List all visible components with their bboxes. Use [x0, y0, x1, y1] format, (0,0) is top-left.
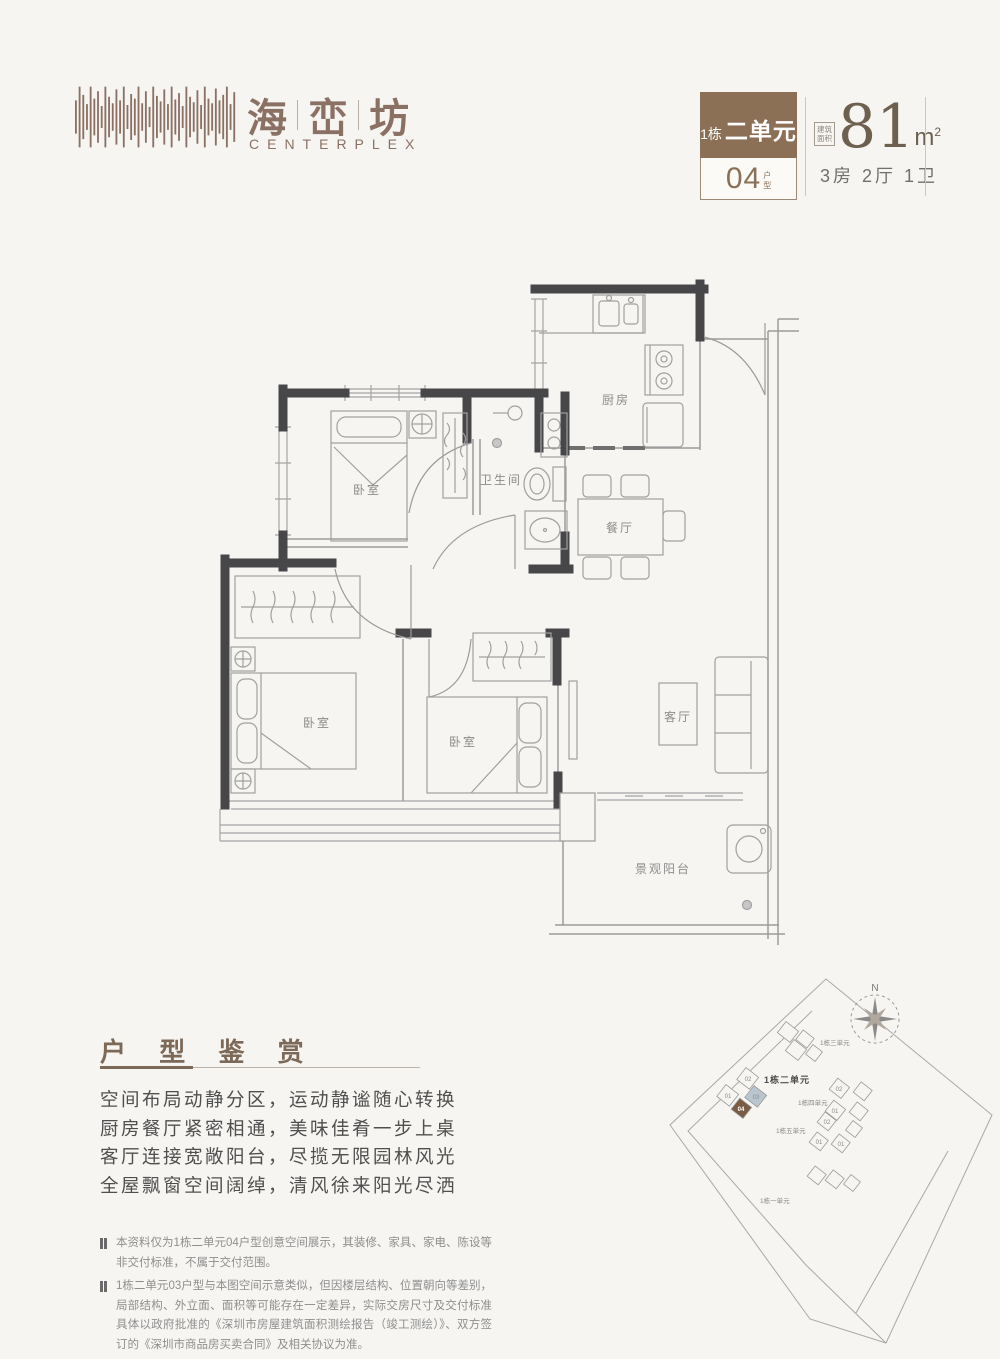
unit-box-number: 01: [832, 1109, 839, 1115]
spec-divider-left: [805, 97, 806, 196]
room-count: 3房 2厅 1卫: [820, 162, 941, 188]
area-unit: m2: [914, 124, 941, 152]
unit-box-number: 01: [816, 1140, 823, 1146]
unit-box-number: 02: [824, 1120, 831, 1126]
disclaimer-note: 1栋二单元03户型与本图空间示意类似，但因楼层结构、位置朝向等差别，局部结构、外…: [100, 1277, 492, 1355]
unit-badge-building: 1栋 二单元: [700, 92, 797, 158]
unit-badge-type: 04 户 型: [700, 158, 797, 200]
appreciation-line: 厨房餐厅紧密相通，美味佳肴一步上桌: [100, 1115, 457, 1144]
type-suffix: 户 型: [763, 171, 771, 189]
logo-barcode-icon: [75, 86, 237, 148]
unit-badge: 1栋 二单元 04 户 型: [700, 92, 797, 200]
brand-name-en: CENTERPLEX: [249, 136, 422, 152]
unit-box-number: 01: [838, 1142, 845, 1148]
balcony-fixtures: [727, 825, 771, 910]
unit-box-number-highlight: 04: [738, 1107, 745, 1113]
sitemap-label-unit1: 1栋一单元: [760, 1196, 790, 1205]
appreciation-line: 客厅连接宽敞阳台，尽揽无限园林风光: [100, 1143, 457, 1172]
room-label-bedroom: 卧室: [303, 715, 331, 730]
site-map: N 1栋三单元 1栋二单元 1栋四单元 1栋五单元 1栋一单元 02 01 03…: [660, 973, 1000, 1357]
appreciation-text: 空间布局动静分区，运动静谧随心转换 厨房餐厅紧密相通，美味佳肴一步上桌 客厅连接…: [100, 1086, 457, 1200]
bedroom3-furniture: [427, 633, 551, 793]
section-title: 户 型 鉴 赏: [100, 1032, 317, 1069]
pillar: [560, 793, 595, 841]
compass-icon: N: [851, 983, 899, 1043]
sitemap-label-unit4: 1栋四单元: [798, 1098, 828, 1107]
type-number: 04: [726, 162, 761, 196]
unit-box-number: 02: [836, 1087, 843, 1093]
master-bedroom-furniture: [231, 576, 360, 793]
site-boundary: [670, 979, 992, 1343]
disclaimer-notes: 本资料仅为1栋二单元04户型创意空间展示，其装修、家具、家电、陈设等非交付标准，…: [100, 1234, 492, 1359]
unit-box-number: 01: [725, 1094, 732, 1100]
note-bullet-icon: [100, 1238, 107, 1249]
bedroom1-furniture: [331, 411, 467, 541]
brand-separator: [297, 100, 298, 130]
sitemap-label-unit3: 1栋三单元: [820, 1038, 850, 1047]
appreciation-line: 全屋飘窗空间阔绰，清风徐来阳光尽洒: [100, 1172, 457, 1201]
spec-block: 建筑 面积 81 m2 3房 2厅 1卫: [814, 96, 941, 188]
room-label-kitchen: 厨房: [602, 392, 630, 407]
area-value: 81: [838, 96, 914, 158]
section-title-underline: [100, 1066, 420, 1069]
floor-plan: 厨房 卫生间 餐厅 卧室 卧室 卧室 客厅 景观阳台: [195, 273, 815, 955]
appreciation-line: 空间布局动静分区，运动静谧随心转换: [100, 1086, 457, 1115]
room-label-bedroom: 卧室: [353, 482, 381, 497]
brand-separator: [358, 100, 359, 130]
room-label-dining: 餐厅: [606, 520, 634, 535]
unit-box-number: 03: [753, 1095, 760, 1101]
building-number: 1栋: [700, 124, 722, 144]
room-label-bathroom: 卫生间: [480, 473, 522, 487]
unit-number: 二单元: [725, 112, 797, 146]
room-label-balcony: 景观阳台: [635, 861, 691, 876]
disclaimer-note: 本资料仅为1栋二单元04户型创意空间展示，其装修、家具、家电、陈设等非交付标准，…: [100, 1234, 492, 1273]
note-bullet-icon: [100, 1281, 107, 1292]
area-label: 建筑 面积: [814, 122, 835, 146]
sitemap-label-unit5: 1栋五单元: [776, 1126, 806, 1135]
spec-divider-right: [925, 97, 926, 196]
room-label-living: 客厅: [664, 709, 692, 724]
sitemap-label-unit2: 1栋二单元: [764, 1074, 810, 1085]
svg-text:N: N: [871, 983, 878, 994]
unit-box-number: 02: [745, 1077, 752, 1083]
room-label-bedroom: 卧室: [449, 734, 477, 749]
